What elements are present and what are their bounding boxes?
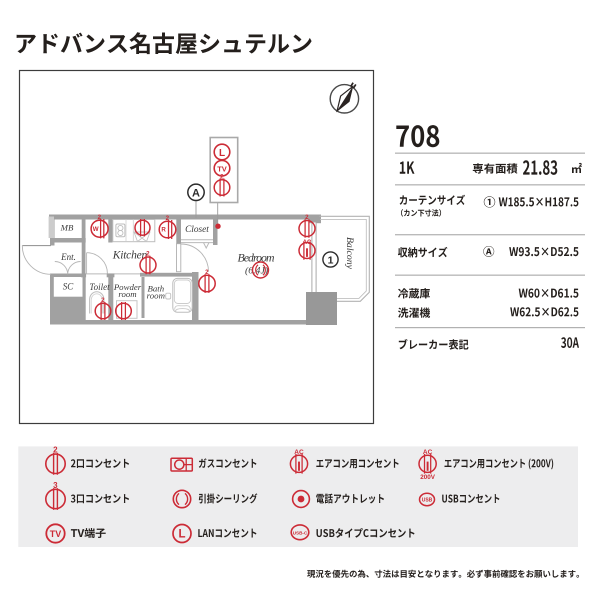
svg-text:AC: AC (294, 449, 304, 456)
svg-text:Closet: Closet (185, 225, 209, 235)
svg-text:USB-C: USB-C (293, 531, 308, 536)
svg-text:2: 2 (146, 251, 150, 258)
svg-text:MB: MB (60, 223, 74, 233)
svg-text:Toilet: Toilet (89, 282, 110, 292)
svg-text:R: R (161, 227, 166, 234)
svg-text:2: 2 (305, 214, 309, 221)
svg-text:AC: AC (303, 240, 312, 246)
svg-text:AC: AC (423, 449, 433, 456)
svg-text:Bedroom: Bedroom (238, 250, 275, 264)
svg-text:1: 1 (328, 254, 334, 266)
svg-text:A: A (192, 187, 200, 199)
svg-text:200V: 200V (420, 474, 436, 481)
svg-text:2: 2 (166, 215, 170, 222)
svg-text:Balcony: Balcony (344, 237, 355, 270)
svg-text:Ent.: Ent. (60, 252, 76, 262)
svg-text:TV: TV (217, 165, 227, 174)
svg-text:L: L (219, 148, 225, 159)
svg-text:TV: TV (50, 529, 62, 539)
svg-text:2: 2 (205, 269, 209, 276)
svg-text:3: 3 (53, 481, 58, 490)
svg-text:2: 2 (53, 446, 58, 455)
svg-text:2: 2 (101, 297, 105, 304)
svg-text:2: 2 (98, 214, 102, 221)
svg-text:USB: USB (422, 498, 433, 504)
svg-text:room: room (118, 289, 136, 299)
svg-text:SC: SC (63, 282, 75, 292)
svg-text:W: W (93, 226, 99, 233)
svg-text:room: room (147, 291, 165, 301)
svg-text:2: 2 (220, 173, 224, 180)
svg-text:L: L (178, 529, 185, 541)
